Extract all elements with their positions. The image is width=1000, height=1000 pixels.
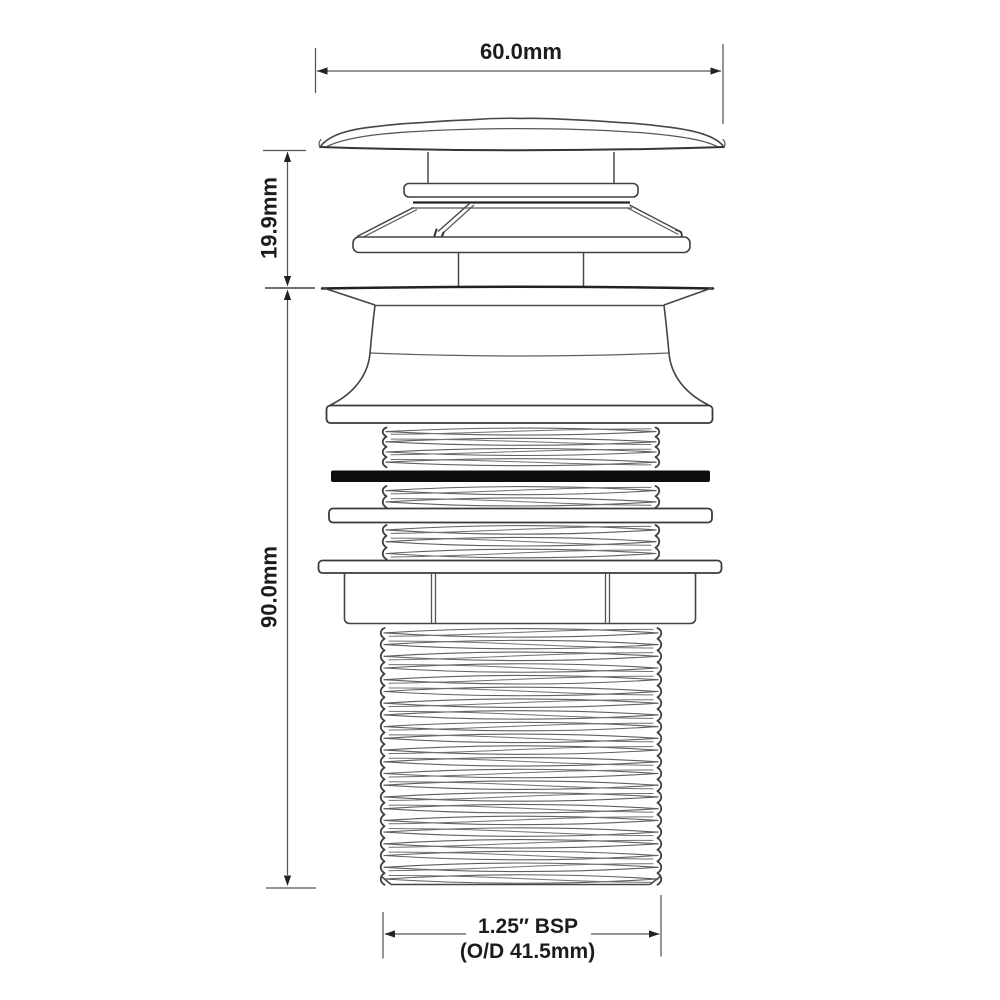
svg-text:19.9mm: 19.9mm [257,177,282,259]
svg-text:60.0mm: 60.0mm [480,39,562,64]
svg-text:90.0mm: 90.0mm [257,546,282,628]
svg-text:1.25″ BSP: 1.25″ BSP [478,915,578,938]
svg-text:(O/D 41.5mm): (O/D 41.5mm) [460,940,595,963]
